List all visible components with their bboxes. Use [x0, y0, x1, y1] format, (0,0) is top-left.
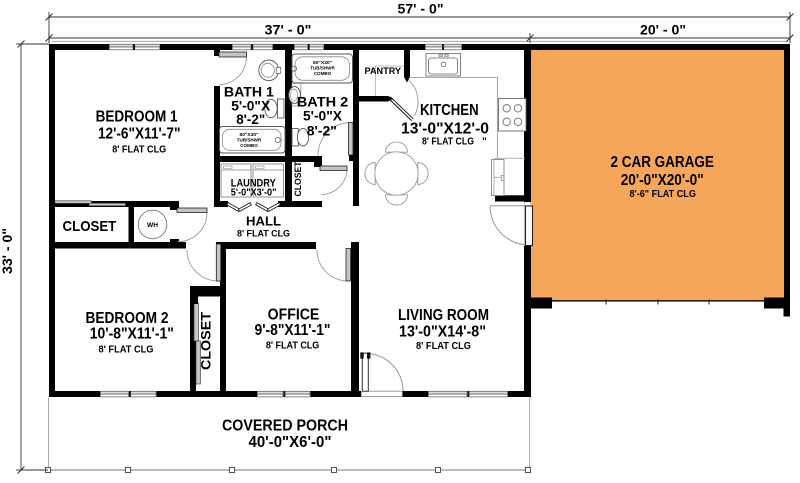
svg-text:8'-2": 8'-2": [236, 111, 265, 127]
svg-text:9'-8"X11'-1": 9'-8"X11'-1": [255, 322, 331, 339]
svg-text:OFFICE: OFFICE: [268, 306, 320, 323]
svg-text:57' - 0": 57' - 0": [398, 2, 444, 17]
svg-text:KITCHEN: KITCHEN: [420, 102, 479, 119]
svg-text:COMBO: COMBO: [314, 71, 332, 77]
svg-text:BEDROOM 1: BEDROOM 1: [96, 108, 178, 125]
svg-text:TUB/SHWR: TUB/SHWR: [237, 138, 262, 144]
svg-text:40'-0"X6'-0": 40'-0"X6'-0": [249, 434, 332, 451]
svg-text:CLOSET: CLOSET: [63, 218, 117, 235]
svg-text:5'-0"X3'-0": 5'-0"X3'-0": [231, 187, 277, 198]
svg-text:8' FLAT CLG: 8' FLAT CLG: [112, 144, 166, 155]
svg-text:": ": [482, 137, 487, 148]
svg-text:COVERED PORCH: COVERED PORCH: [222, 417, 348, 434]
svg-text:8' FLAT CLG: 8' FLAT CLG: [422, 137, 474, 148]
svg-text:20' - 0": 20' - 0": [640, 23, 686, 38]
svg-text:60"X30": 60"X30": [240, 132, 259, 138]
svg-text:8'-2": 8'-2": [307, 123, 337, 139]
svg-text:TUB/SHWR: TUB/SHWR: [310, 65, 335, 71]
svg-text:PANTRY: PANTRY: [365, 66, 402, 77]
svg-text:BEDROOM 2: BEDROOM 2: [86, 310, 169, 327]
svg-text:LIVING ROOM: LIVING ROOM: [398, 307, 489, 324]
svg-text:8'-6" FLAT CLG: 8'-6" FLAT CLG: [630, 189, 697, 200]
svg-text:10'-8"X11'-1": 10'-8"X11'-1": [90, 326, 174, 343]
svg-text:CLOSET: CLOSET: [293, 161, 303, 196]
svg-text:WH: WH: [147, 222, 158, 229]
svg-text:8' FLAT CLG: 8' FLAT CLG: [99, 345, 154, 356]
svg-text:2 CAR GARAGE: 2 CAR GARAGE: [610, 154, 714, 171]
svg-text:8' FLAT CLG: 8' FLAT CLG: [237, 228, 290, 238]
svg-text:60"X30": 60"X30": [313, 60, 332, 66]
svg-text:CLOSET: CLOSET: [199, 311, 214, 370]
svg-text:HALL: HALL: [246, 213, 281, 228]
svg-text:13'-0"X12'-0: 13'-0"X12'-0: [401, 121, 489, 138]
svg-text:5'-0"X: 5'-0"X: [303, 107, 343, 123]
svg-text:33' - 0": 33' - 0": [0, 228, 15, 274]
svg-text:8' FLAT CLG: 8' FLAT CLG: [416, 341, 471, 352]
svg-text:20'-0"X20'-0": 20'-0"X20'-0": [621, 172, 704, 189]
svg-text:COMBO: COMBO: [240, 143, 258, 149]
svg-text:13'-0"X14'-8": 13'-0"X14'-8": [399, 323, 486, 340]
svg-text:8' FLAT CLG: 8' FLAT CLG: [266, 340, 320, 351]
svg-text:37' - 0": 37' - 0": [265, 23, 312, 38]
svg-text:12'-6"X11'-7": 12'-6"X11'-7": [98, 125, 181, 142]
